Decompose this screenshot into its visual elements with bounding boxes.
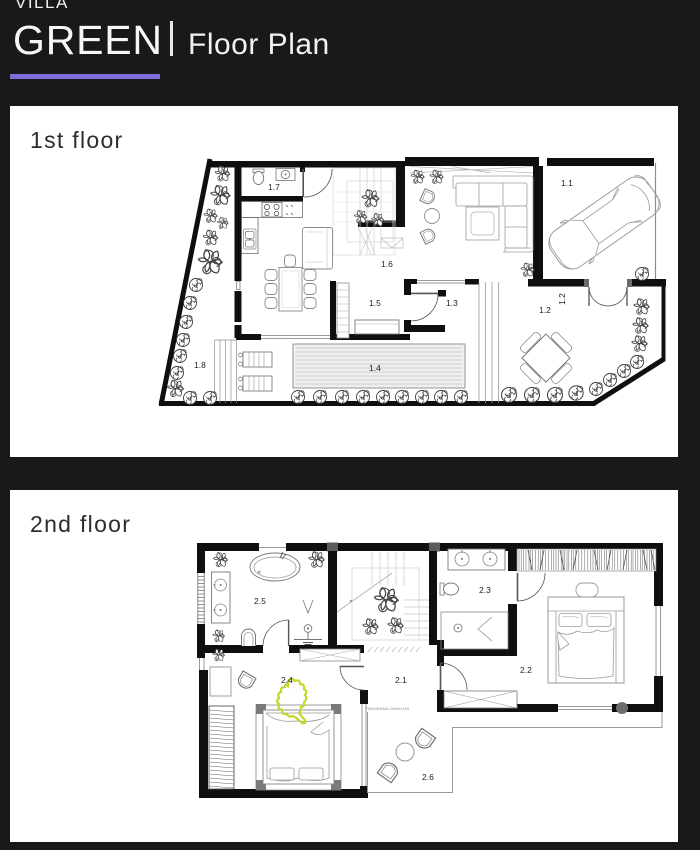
- svg-text:2.3: 2.3: [479, 585, 491, 595]
- svg-text:1.1: 1.1: [561, 178, 573, 188]
- svg-text:2.4: 2.4: [281, 675, 293, 685]
- svg-text:1.8: 1.8: [194, 360, 206, 370]
- svg-text:1.6: 1.6: [381, 259, 393, 269]
- svg-text:1.2: 1.2: [557, 293, 567, 305]
- svg-text:1.3: 1.3: [446, 298, 458, 308]
- svg-text:1.2: 1.2: [539, 305, 551, 315]
- svg-text:1.7: 1.7: [268, 182, 280, 192]
- svg-text:1.4: 1.4: [369, 363, 381, 373]
- svg-text:2.5: 2.5: [254, 596, 266, 606]
- svg-text:2.1: 2.1: [395, 675, 407, 685]
- svg-text:2.6: 2.6: [422, 772, 434, 782]
- svg-text:PANORAMA 2400x2100: PANORAMA 2400x2100: [366, 706, 410, 711]
- svg-text:1.5: 1.5: [369, 298, 381, 308]
- svg-text:2.2: 2.2: [520, 665, 532, 675]
